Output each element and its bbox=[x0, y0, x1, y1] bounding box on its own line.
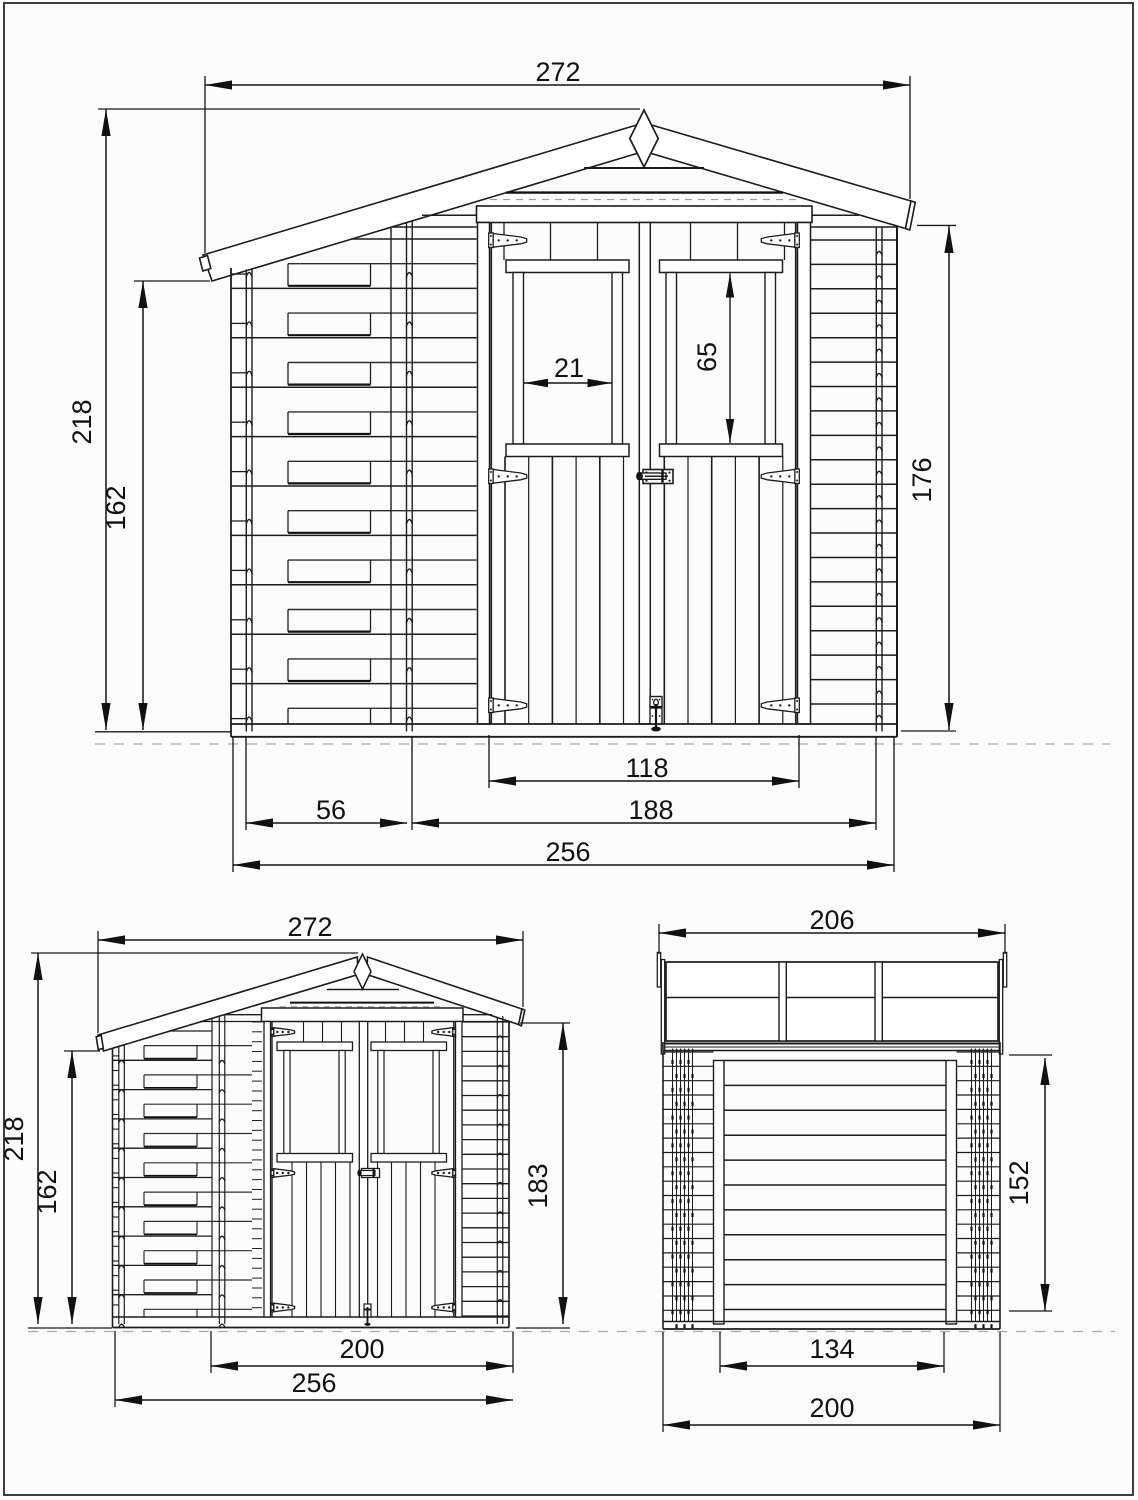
svg-text:272: 272 bbox=[287, 912, 332, 942]
svg-text:162: 162 bbox=[101, 485, 131, 530]
svg-text:176: 176 bbox=[907, 457, 937, 502]
svg-text:162: 162 bbox=[32, 1169, 62, 1214]
svg-text:118: 118 bbox=[625, 753, 668, 783]
svg-text:272: 272 bbox=[535, 57, 580, 87]
svg-text:134: 134 bbox=[809, 1334, 854, 1364]
svg-text:152: 152 bbox=[1004, 1160, 1034, 1205]
svg-text:183: 183 bbox=[523, 1163, 553, 1208]
svg-text:218: 218 bbox=[0, 1116, 29, 1161]
svg-text:188: 188 bbox=[628, 795, 673, 825]
svg-text:200: 200 bbox=[339, 1334, 384, 1364]
svg-text:256: 256 bbox=[291, 1368, 336, 1398]
svg-text:56: 56 bbox=[316, 795, 346, 825]
svg-text:206: 206 bbox=[809, 905, 854, 935]
svg-text:256: 256 bbox=[545, 837, 590, 867]
svg-text:65: 65 bbox=[692, 342, 722, 372]
svg-text:21: 21 bbox=[554, 353, 584, 383]
svg-text:200: 200 bbox=[809, 1393, 854, 1423]
svg-text:218: 218 bbox=[67, 399, 97, 444]
